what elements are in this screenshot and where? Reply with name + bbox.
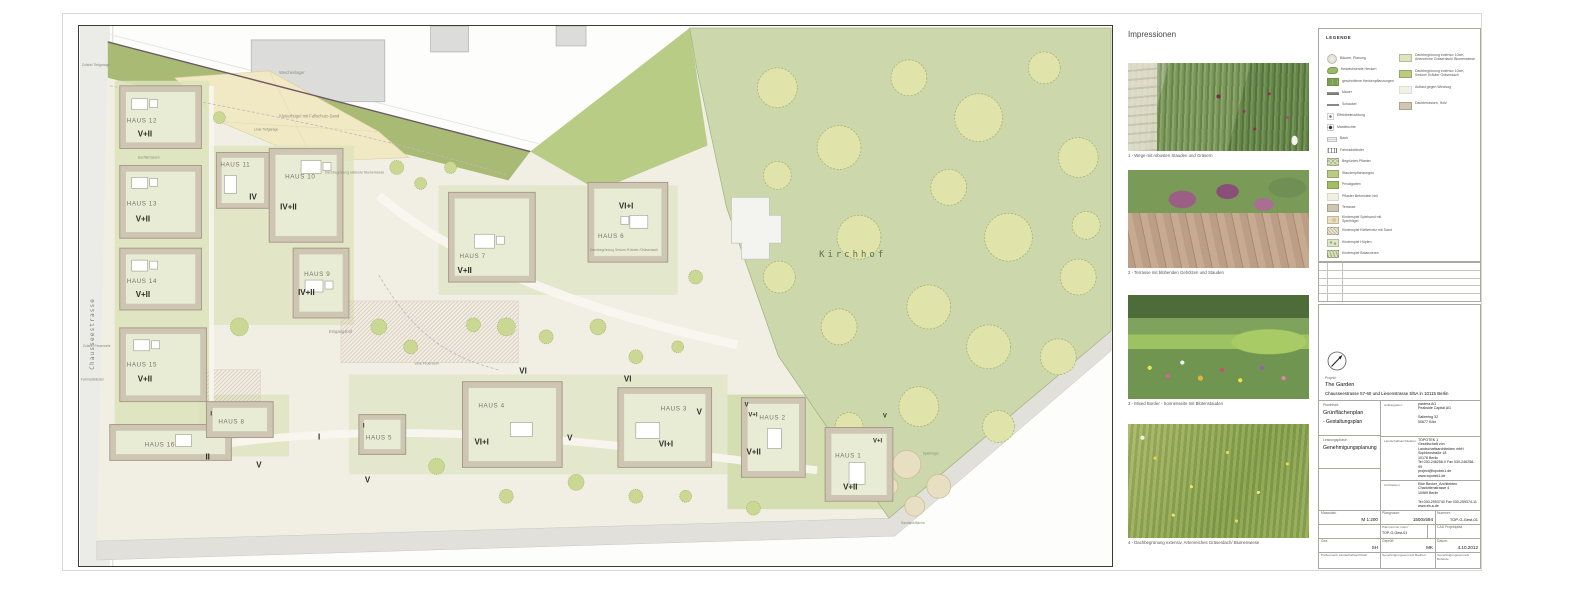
green-paving-swatch (1327, 158, 1339, 166)
svg-text:HAUS 11: HAUS 11 (220, 161, 250, 168)
green-paving-area (341, 301, 518, 363)
svg-text:HAUS 5: HAUS 5 (366, 434, 392, 441)
annotation-fahrradstaender: Fahrradständer (81, 378, 105, 382)
bike-stand-icon (1327, 148, 1337, 153)
building-haus-15: HAUS 15 V+II (120, 328, 207, 402)
plangroesse-value: 1500x594 (1413, 517, 1433, 522)
leistungsphase-label: Leistungsphase: (1323, 438, 1348, 442)
svg-text:V+II: V+II (136, 290, 150, 299)
site-plan: Weichenlager Mauer Bestand (78, 25, 1113, 567)
svg-text:I: I (318, 432, 320, 441)
revision-row (1319, 263, 1480, 270)
play-sand-swatch (1327, 216, 1339, 224)
gez-cell: Gez: SH (1319, 538, 1380, 552)
massstab-cell: Massstab: M 1:200 (1319, 510, 1380, 524)
planinhalt-value-2: - Gestaltungsplan (1323, 419, 1362, 425)
revision-table (1318, 262, 1481, 302)
svg-text:IV: IV (249, 192, 257, 201)
svg-text:VI+I: VI+I (659, 439, 673, 448)
svg-text:V: V (883, 414, 887, 420)
building-haus-14: HAUS 14 V+II (120, 248, 202, 310)
svg-text:HAUS 10: HAUS 10 (285, 173, 315, 180)
annotation-weichenlager: Weichenlager (279, 70, 305, 75)
bench-icon (1327, 137, 1337, 142)
mast-light-icon (1327, 124, 1334, 131)
auftraggeber-value: pantera AG Peakside Capital AG Salierrin… (1418, 402, 1478, 424)
planinhalt-value: Grünflächenplan (1323, 410, 1363, 416)
legend-column-left: Bäume, Planung freiwachsende Hecken gesc… (1327, 53, 1395, 260)
impression-photo-2: 2 - Terrasse mit blühenden Gehölzen und … (1128, 170, 1309, 275)
svg-text:HAUS 15: HAUS 15 (127, 362, 157, 369)
svg-text:HAUS 8: HAUS 8 (218, 419, 244, 426)
plannummer-cell: Plannummer intern: TOP-G-Gest-01 (1380, 524, 1427, 538)
svg-text:V+II: V+II (843, 482, 857, 491)
swing-icon (1327, 104, 1339, 106)
pruefvermerk-cell-3: Genehmigungsvermerk Behörde (1435, 552, 1480, 567)
svg-text:HAUS 12: HAUS 12 (127, 118, 157, 125)
building-haus-10: HAUS 10 IV+II (269, 149, 343, 243)
planinhalt-label: Planinhalt: (1323, 403, 1339, 407)
building-haus-7: HAUS 7 V+II (449, 192, 536, 282)
revision-row (1319, 293, 1480, 301)
building-haus-11: HAUS 11 IV (216, 153, 269, 209)
roof-sedum-swatch (1399, 70, 1412, 78)
datum-value: 4.10.2012 (1458, 545, 1478, 550)
annotation-zufahrt-tiefgarage: Zufahrt Tiefgarage (82, 63, 110, 67)
svg-text:HAUS 7: HAUS 7 (460, 253, 486, 260)
revision-row (1319, 270, 1480, 278)
legend-title: LEGENDE (1326, 35, 1351, 40)
svg-text:V: V (256, 460, 262, 469)
right-panel: LEGENDE Bäume, Planung freiwachsende Hec… (1318, 20, 1481, 570)
impression-photo-1: 1 - Wege mit robusten Stauden und Gräser… (1128, 63, 1309, 158)
svg-text:V+II: V+II (138, 375, 152, 384)
photo-caption-4: 4 - Dachbegrünung extensiv, Artenreiches… (1128, 540, 1309, 545)
building-haus-8: HAUS 8 I (206, 402, 273, 438)
annotation-spielhuegel: Spielhügel (923, 451, 939, 455)
svg-text:IV+II: IV+II (280, 202, 297, 211)
photo-terrasse (1128, 170, 1309, 268)
building-haus-3: HAUS 3 VI+I (618, 388, 712, 468)
landschaftsarchitekten-value: TOPOTEK 1 Gesellschaft von Landschaftsar… (1418, 438, 1478, 478)
free-hedge-icon (1327, 67, 1338, 74)
nummer-cell: Nummer: TOP-G-Gest-01 (1435, 510, 1480, 524)
svg-text:V: V (697, 408, 703, 417)
svg-text:V+I: V+I (748, 413, 757, 419)
impressionen-panel: Impressionen 1 - Wege mit robusten Staud… (1128, 0, 1309, 605)
annotation-kirchhof: Kirchhof (819, 250, 886, 260)
annotation-dachbegruenung-blumen: Dachbegrünung extensiv/ Blumenwiese (325, 170, 384, 174)
north-arrow-icon (1327, 351, 1347, 371)
photo-caption-2: 2 - Terrasse mit blühenden Gehölzen und … (1128, 270, 1309, 275)
svg-text:VI: VI (519, 367, 527, 376)
projekt-label: Projekt: (1325, 376, 1337, 380)
title-block: Projekt: The Garden Chausseestrasse 57-6… (1318, 304, 1481, 569)
svg-text:HAUS 1: HAUS 1 (835, 452, 861, 459)
roof-meadow-swatch (1399, 54, 1412, 62)
annotation-linie-tiefgarage: Linie Tiefgarage (254, 128, 278, 132)
wind-ballast-swatch (1399, 86, 1412, 94)
plannummer-value: TOP-G-Gest-01 (1382, 531, 1407, 535)
project-address: Chausseestrasse 57-60 und Liesenstrasse … (1325, 391, 1448, 396)
terrace-swatch (1327, 204, 1339, 212)
auftraggeber-label: Auftraggeber: (1384, 403, 1403, 407)
massstab-value: M 1:200 (1361, 517, 1378, 522)
svg-text:VI: VI (624, 375, 632, 384)
impression-photo-3: 3 - Mixed Border - Sonnenseite mit Blüte… (1128, 295, 1309, 406)
svg-text:VI+I: VI+I (474, 437, 488, 446)
annotation-eingangshof: Eingangshof (329, 329, 353, 334)
photo-stauden-graeser (1128, 63, 1309, 151)
svg-text:HAUS 2: HAUS 2 (759, 415, 785, 422)
photo-dachbegruenung (1128, 424, 1309, 538)
svg-text:HAUS 3: HAUS 3 (661, 406, 687, 413)
private-garden-swatch (1327, 181, 1339, 189)
impression-photo-4: 4 - Dachbegrünung extensiv, Artenreiches… (1128, 424, 1309, 545)
svg-text:IV+II: IV+II (298, 288, 315, 297)
annotation-kletterhuegel: Kletterhügel mit Fallschutz-Sand (279, 114, 340, 119)
pruefvermerk-cell-2: Genehmigungsvermerk Bauherr (1380, 552, 1435, 567)
building-haus-4: HAUS 4 VI+I (462, 382, 562, 468)
landschaftsarchitekten-label: Landschaftsarchitekten: (1384, 439, 1417, 443)
architekten-value: Eike Becker_Architekten Charlottenstrass… (1418, 482, 1478, 509)
plangroesse-cell: Plangrosse: 1500x594 (1380, 510, 1435, 524)
svg-text:V: V (365, 475, 371, 484)
effect-light-icon (1327, 113, 1334, 120)
annotation-zufahrt-feuerwehr: Zufahrt Feuerwehr (83, 344, 112, 348)
geprueft-cell: Geprüft: MK (1380, 538, 1435, 552)
svg-text:HAUS 6: HAUS 6 (598, 233, 624, 240)
building-haus-12: HAUS 12 V+II (120, 86, 202, 149)
svg-text:V+II: V+II (458, 266, 472, 275)
legend-column-right: Dachbegrünung extensiv 10cm, Artenreiche… (1399, 53, 1477, 117)
building-haus-2: HAUS 2 V+II V V+I (741, 398, 805, 478)
roof-terrace-swatch (1399, 102, 1412, 110)
svg-text:HAUS 13: HAUS 13 (127, 200, 157, 207)
building-haus-5: HAUS 5 I (359, 415, 406, 455)
gez-value: SH (1372, 545, 1378, 550)
svg-text:HAUS 9: HAUS 9 (304, 271, 330, 278)
play-hop-swatch (1327, 239, 1339, 247)
svg-text:V+I: V+I (873, 438, 882, 444)
project-name: The Garden (1325, 382, 1354, 388)
svg-text:V+II: V+II (746, 447, 760, 456)
legend: LEGENDE Bäume, Planung freiwachsende Hec… (1318, 28, 1481, 262)
play-balance-swatch (1327, 250, 1339, 258)
photo-caption-1: 1 - Wege mit robusten Stauden und Gräser… (1128, 153, 1309, 158)
street-label-chausseestrasse: Chausseestrasse (89, 298, 96, 370)
building-haus-9: HAUS 9 IV+II (293, 248, 349, 318)
svg-text:V+II: V+II (136, 214, 150, 223)
revision-row (1319, 278, 1480, 286)
geprueft-value: MK (1426, 545, 1433, 550)
leistungsphase-value: Genehmigungsplanung (1323, 445, 1377, 451)
wall-icon (1327, 92, 1339, 95)
svg-text:HAUS 14: HAUS 14 (127, 278, 157, 285)
datum-cell: Datum: 4.10.2012 (1435, 538, 1480, 552)
pruefvermerk-cell-1: Prüfvermerk Landschaftsarchitekt (1319, 552, 1380, 567)
cad-cell: CAD Projektpfad (1435, 524, 1480, 538)
building-haus-13: HAUS 13 V+II (120, 165, 202, 238)
svg-text:V+II: V+II (138, 130, 152, 139)
svg-text:HAUS 4: HAUS 4 (478, 403, 504, 410)
impressionen-title: Impressionen (1128, 30, 1176, 39)
perennials-swatch (1327, 170, 1339, 178)
annotation-dachbegruenung-sedum: Dachbegrünung Sedum /Kräuter /Gräserdach (590, 248, 658, 252)
svg-text:II: II (205, 452, 209, 461)
annotation-dachterrassen: Dachterrassen (138, 156, 160, 160)
climb-net-swatch (1327, 227, 1339, 235)
nummer-value: TOP-G-Gest-01 (1450, 517, 1478, 522)
svg-text:V: V (567, 433, 573, 442)
svg-text:V: V (744, 403, 748, 409)
annotation-sandspielflaeche: Sandspielfläche (901, 521, 925, 525)
photo-caption-3: 3 - Mixed Border - Sonnenseite mit Blüte… (1128, 401, 1309, 406)
revision-row (1319, 285, 1480, 293)
plan-sheet: Weichenlager Mauer Bestand (0, 0, 1582, 605)
clipped-hedge-icon (1327, 78, 1339, 86)
light-paving-swatch (1327, 193, 1339, 201)
svg-text:VI+I: VI+I (619, 201, 633, 210)
annotation-linie-feuerwehr: Linie Feuerwehr (415, 362, 440, 366)
architekten-label: Architekten: (1384, 483, 1400, 487)
photo-mixed-border (1128, 295, 1309, 399)
svg-text:HAUS 16: HAUS 16 (145, 441, 175, 448)
tree-icon (1327, 54, 1337, 64)
